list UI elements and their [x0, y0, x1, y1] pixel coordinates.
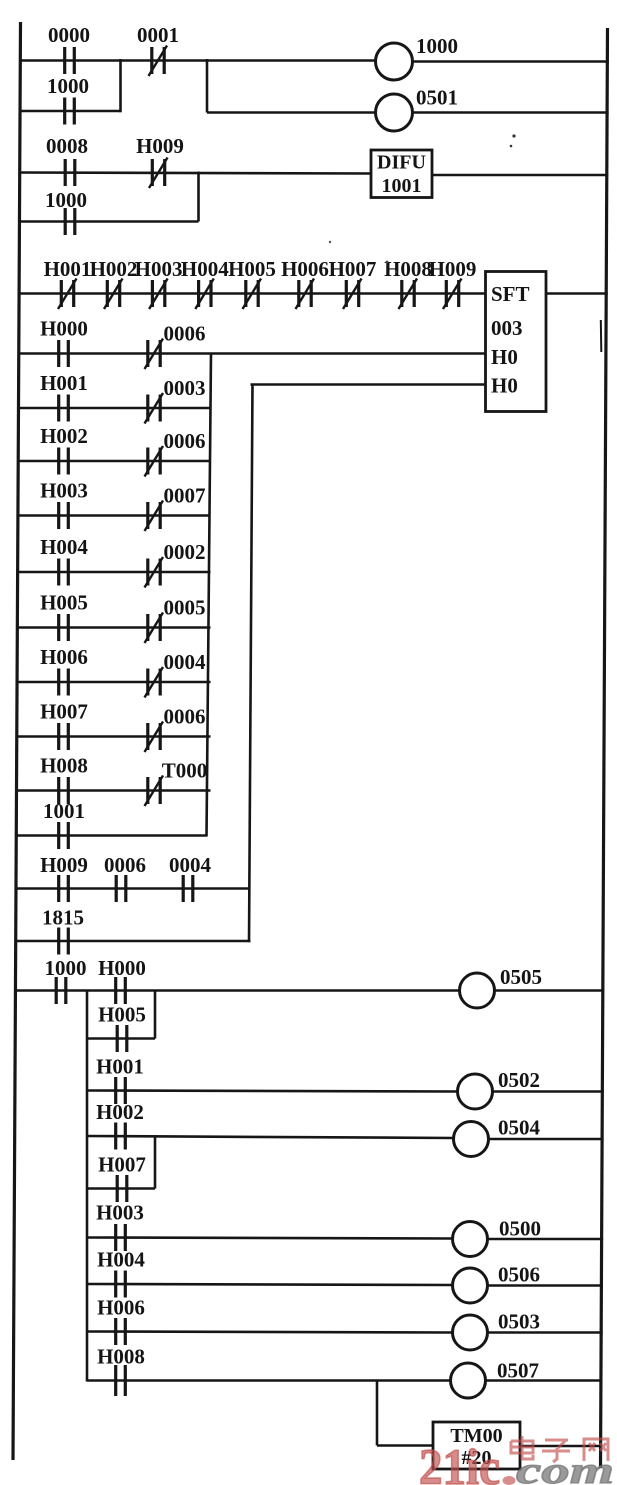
svg-text:0507: 0507 [497, 1359, 539, 1383]
svg-text:H002: H002 [96, 1100, 144, 1124]
svg-text:1001: 1001 [382, 175, 422, 197]
svg-text:T000: T000 [162, 759, 208, 783]
svg-text:H0: H0 [491, 374, 518, 398]
svg-text:H001: H001 [40, 371, 88, 395]
svg-text:H002: H002 [40, 424, 88, 448]
svg-text:0004: 0004 [164, 650, 207, 674]
svg-text:0005: 0005 [164, 596, 206, 620]
svg-text:H006: H006 [40, 645, 88, 669]
svg-text:H009: H009 [136, 134, 184, 158]
svg-text:0002: 0002 [164, 540, 206, 564]
svg-text:SFT: SFT [491, 282, 530, 306]
svg-text:H0: H0 [491, 345, 518, 369]
svg-text:0007: 0007 [164, 484, 206, 508]
svg-text:H003: H003 [135, 257, 183, 281]
svg-text:H009: H009 [429, 257, 477, 281]
svg-text:1000: 1000 [47, 74, 89, 98]
svg-text:com: com [516, 1450, 614, 1485]
svg-text:003: 003 [491, 316, 523, 340]
svg-text:H005: H005 [228, 257, 276, 281]
svg-text:H004: H004 [40, 535, 88, 559]
svg-text:0006: 0006 [104, 853, 146, 877]
svg-text:H004: H004 [97, 1248, 145, 1272]
svg-text:0000: 0000 [48, 23, 90, 47]
svg-text:0502: 0502 [498, 1068, 540, 1092]
svg-text:0503: 0503 [498, 1310, 540, 1334]
svg-text:0006: 0006 [164, 429, 206, 453]
svg-text:0505: 0505 [500, 965, 542, 989]
svg-text:0501: 0501 [416, 86, 458, 110]
svg-text:H008: H008 [97, 1345, 145, 1369]
svg-text:H009: H009 [40, 853, 88, 877]
svg-text:1815: 1815 [42, 906, 84, 930]
svg-text:DIFU: DIFU [377, 152, 426, 174]
svg-text:1000: 1000 [45, 188, 87, 212]
svg-text:0003: 0003 [164, 376, 206, 400]
svg-text:H007: H007 [98, 1153, 146, 1177]
svg-text:H008: H008 [40, 754, 88, 778]
svg-text:0506: 0506 [498, 1263, 540, 1287]
svg-text:H006: H006 [281, 257, 329, 281]
svg-text:H005: H005 [98, 1003, 146, 1027]
svg-text:H007: H007 [329, 257, 377, 281]
svg-text:H003: H003 [96, 1201, 144, 1225]
svg-text:0001: 0001 [137, 23, 179, 47]
svg-text:H000: H000 [40, 317, 88, 341]
svg-text:H003: H003 [40, 479, 88, 503]
svg-text:H000: H000 [98, 956, 146, 980]
svg-text:1001: 1001 [43, 799, 85, 823]
svg-text:H002: H002 [90, 257, 138, 281]
svg-text:H006: H006 [97, 1296, 145, 1320]
svg-text:H004: H004 [181, 257, 229, 281]
svg-text:H007: H007 [40, 700, 88, 724]
svg-text:0006: 0006 [164, 705, 206, 729]
svg-text:0004: 0004 [169, 853, 212, 877]
svg-text:21ic: 21ic [419, 1440, 500, 1485]
svg-text:1000: 1000 [45, 956, 87, 980]
svg-text:H001: H001 [44, 257, 92, 281]
svg-text:H008: H008 [384, 257, 432, 281]
svg-text:0008: 0008 [46, 134, 88, 158]
svg-text:H005: H005 [40, 591, 88, 615]
svg-text:0006: 0006 [164, 322, 206, 346]
svg-text:H001: H001 [96, 1055, 144, 1079]
svg-text:0504: 0504 [498, 1116, 541, 1140]
svg-text:0500: 0500 [499, 1217, 541, 1241]
svg-text:1000: 1000 [416, 34, 458, 58]
